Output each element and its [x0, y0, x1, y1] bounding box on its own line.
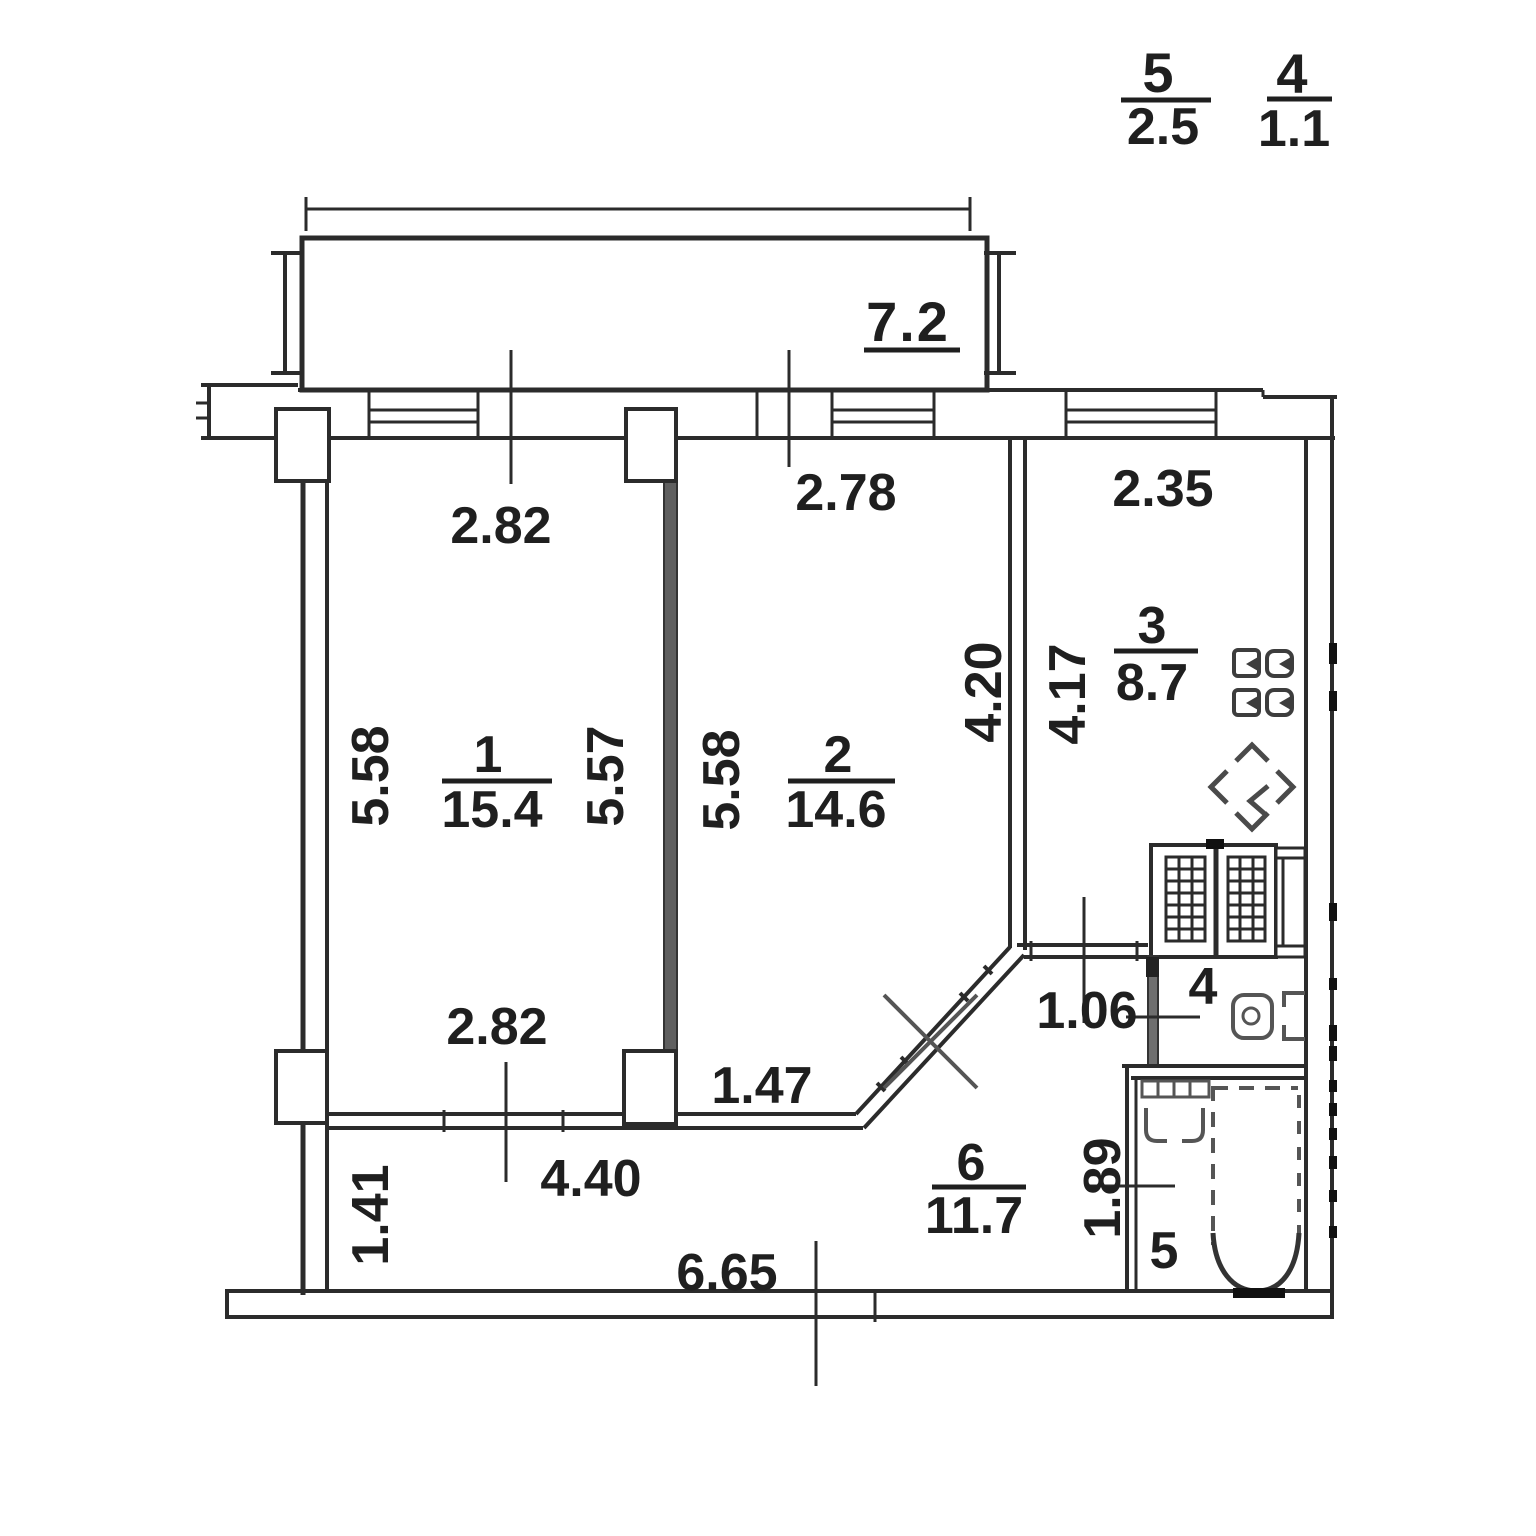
- svg-text:5: 5: [1150, 1222, 1179, 1280]
- svg-text:14.6: 14.6: [785, 781, 886, 839]
- svg-text:5.58: 5.58: [693, 729, 751, 830]
- svg-text:1.1: 1.1: [1258, 100, 1330, 158]
- svg-text:8.7: 8.7: [1116, 654, 1188, 712]
- svg-text:4.17: 4.17: [1039, 643, 1097, 744]
- svg-text:1: 1: [474, 726, 503, 784]
- svg-text:2.78: 2.78: [795, 464, 896, 522]
- svg-text:11.7: 11.7: [925, 1187, 1023, 1245]
- svg-text:7.2: 7.2: [866, 290, 950, 353]
- svg-text:5.57: 5.57: [577, 725, 635, 826]
- svg-text:2.5: 2.5: [1127, 98, 1199, 156]
- svg-text:1.06: 1.06: [1036, 982, 1137, 1040]
- svg-text:6: 6: [957, 1134, 986, 1192]
- svg-text:1.89: 1.89: [1074, 1137, 1132, 1238]
- svg-text:15.4: 15.4: [441, 781, 542, 839]
- svg-text:4.40: 4.40: [540, 1150, 641, 1208]
- svg-text:2.82: 2.82: [446, 998, 547, 1056]
- svg-text:2: 2: [824, 726, 853, 784]
- svg-text:1.41: 1.41: [342, 1164, 400, 1265]
- svg-text:4: 4: [1189, 958, 1218, 1016]
- svg-text:5.58: 5.58: [342, 725, 400, 826]
- svg-text:2.82: 2.82: [450, 497, 551, 555]
- svg-text:2.35: 2.35: [1112, 460, 1213, 518]
- svg-text:4.20: 4.20: [955, 641, 1013, 742]
- svg-text:3: 3: [1138, 597, 1167, 655]
- svg-text:4: 4: [1276, 42, 1307, 105]
- svg-text:5: 5: [1142, 41, 1173, 104]
- svg-text:1.47: 1.47: [711, 1057, 812, 1115]
- svg-text:6.65: 6.65: [676, 1244, 777, 1302]
